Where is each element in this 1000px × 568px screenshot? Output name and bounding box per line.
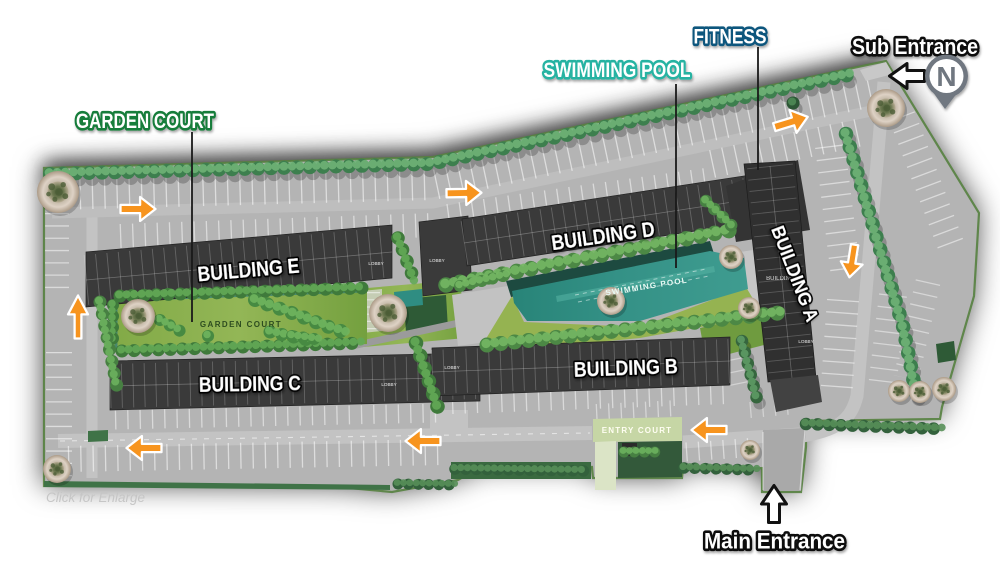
svg-text:Sub Entrance: Sub Entrance <box>852 34 978 59</box>
svg-text:LOBBY: LOBBY <box>798 339 813 344</box>
svg-text:Main Entrance: Main Entrance <box>704 529 845 554</box>
svg-text:ENTRY COURT: ENTRY COURT <box>602 426 673 435</box>
svg-text:Click for Enlarge: Click for Enlarge <box>46 490 145 505</box>
svg-text:GARDEN COURT: GARDEN COURT <box>76 110 214 133</box>
svg-text:LOBBY: LOBBY <box>429 258 444 263</box>
svg-text:FITNESS: FITNESS <box>694 26 767 49</box>
svg-text:LOBBY: LOBBY <box>368 261 383 266</box>
svg-text:BUILDING C: BUILDING C <box>199 372 301 397</box>
svg-text:LOBBY: LOBBY <box>444 365 459 370</box>
svg-text:N: N <box>936 61 956 92</box>
svg-text:GARDEN COURT: GARDEN COURT <box>200 320 282 329</box>
svg-text:LOBBY: LOBBY <box>381 382 396 387</box>
svg-text:BUILDING B: BUILDING B <box>573 355 678 382</box>
svg-text:SWIMMING POOL: SWIMMING POOL <box>544 59 691 82</box>
